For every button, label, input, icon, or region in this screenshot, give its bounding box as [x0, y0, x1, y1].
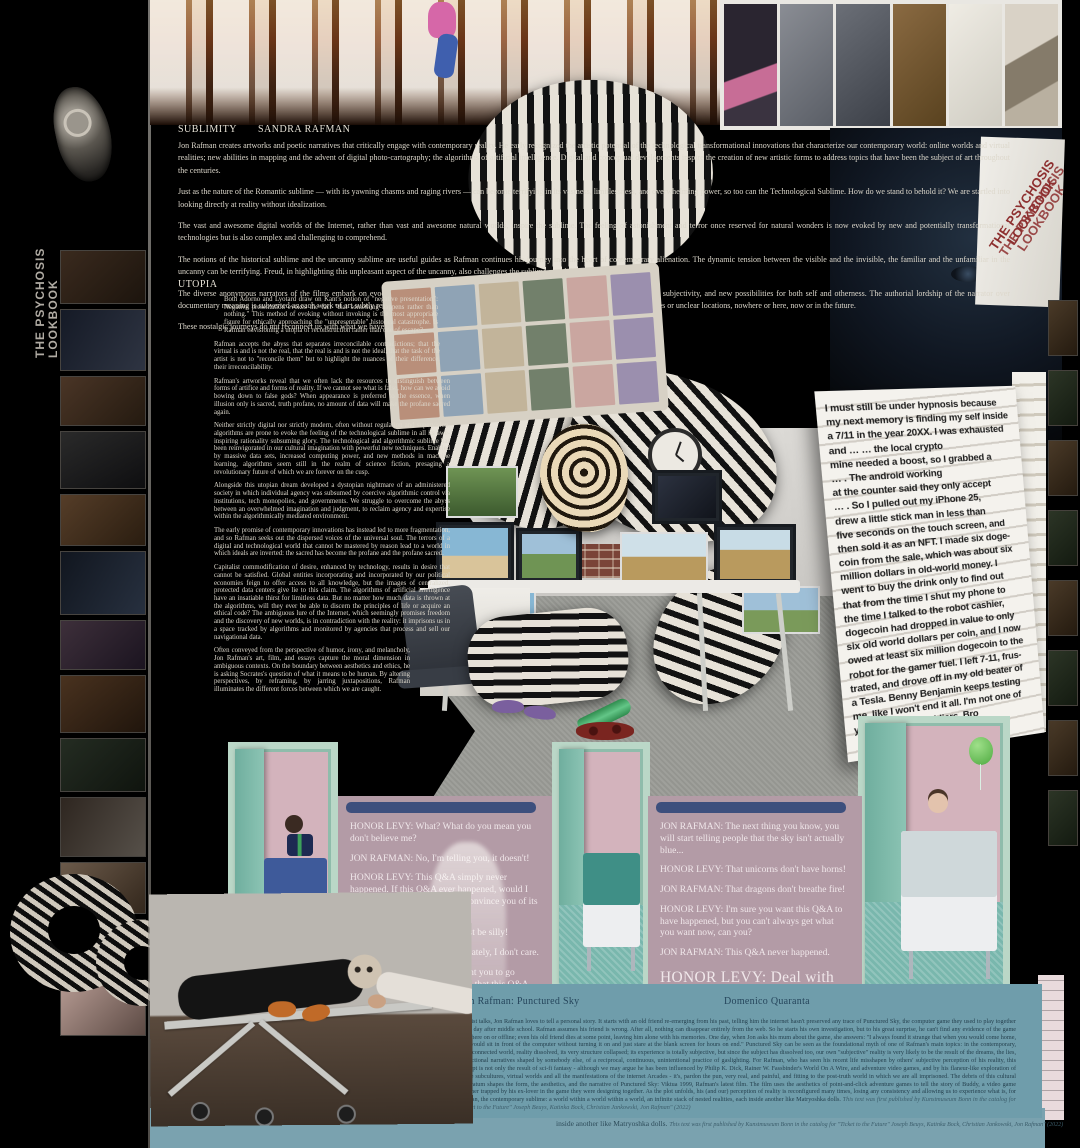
monitor-screen: [442, 528, 508, 578]
patient-head: [285, 815, 303, 833]
stretcher-wheel: [337, 1105, 356, 1124]
album-photo: [485, 370, 528, 413]
bed-leg: [587, 947, 591, 971]
essay-paragraph: The early promise of contemporary innova…: [214, 527, 450, 558]
mascot-logo-icon: [47, 81, 120, 186]
album-photo: [616, 361, 659, 404]
orange-glove: [268, 1001, 296, 1017]
film-frame: [60, 431, 146, 489]
film-frame: [60, 797, 146, 857]
qa-line: HONOR LEVY: That unicorns don't have hor…: [660, 865, 850, 877]
coil-hole: [48, 906, 100, 954]
qa-line: HONOR LEVY: What? What do you mean you d…: [350, 822, 540, 846]
album-photo: [613, 317, 656, 360]
pinned-photo: [446, 466, 518, 518]
hospital-door-3: [858, 716, 1010, 1001]
essay-paragraph: Rafman accepts the abyss that separates …: [214, 341, 440, 372]
footer-caption: inside another like Matryoshka dolls. Th…: [556, 1119, 1063, 1128]
stretcher-wheel: [191, 1102, 210, 1121]
patient-head: [928, 793, 948, 813]
essay-paragraph: Often conveyed from the perspective of h…: [214, 647, 410, 693]
monitor-screen: [658, 476, 716, 518]
film-frame: [60, 250, 146, 304]
film-frame: [893, 4, 946, 126]
film-frame: [60, 738, 146, 792]
album-photo: [526, 323, 569, 366]
catalog-body-text: In artist talks, Jon Rafman loves to tel…: [458, 1018, 1016, 1103]
qa-panel-right: JON RAFMAN: The next thing you know, you…: [648, 796, 862, 1008]
bed-leg: [909, 951, 913, 979]
hanging-figure-torso: [428, 2, 456, 38]
film-frame: [1048, 510, 1078, 566]
stretcher-leg: [258, 1019, 348, 1095]
essay-paragraph: Alongside this utopian dream developed a…: [214, 482, 450, 521]
footer-citation: This text was first published by Kunstmu…: [669, 1122, 1063, 1128]
dogecoin-story-text: I must still be under hypnosis because m…: [824, 396, 1035, 738]
essay-paragraph: Capitalist commodification of desire, en…: [214, 564, 450, 641]
film-frame: [60, 551, 146, 615]
hospital-bed: [583, 853, 640, 947]
film-frame: [1048, 650, 1078, 706]
album-photo: [610, 272, 653, 315]
red-object-on-floor: [576, 722, 634, 740]
film-frame: [1048, 790, 1078, 846]
story-page: I must still be under hypnosis because m…: [814, 386, 1044, 763]
film-frame: [60, 309, 146, 371]
film-frame: [60, 620, 146, 670]
album-photo: [569, 320, 612, 363]
film-strip-right: [1046, 300, 1080, 860]
monitor-screen: [720, 530, 790, 579]
film-frame: [780, 4, 833, 126]
monitor: [652, 470, 722, 524]
album-photo: [573, 364, 616, 407]
qa-line: JON RAFMAN: This Q&A never happened.: [660, 948, 850, 960]
film-frame: [1048, 720, 1078, 776]
film-frame: [1048, 440, 1078, 496]
collage-page: THE PSYCHOSIS LOOKBOOK THE PSYCHOSIS LOO…: [0, 0, 1080, 1148]
pinned-photo: [620, 532, 708, 586]
hospital-door-2: [552, 742, 650, 992]
film-frame: [60, 376, 146, 426]
film-frame: [1005, 4, 1058, 126]
stretcher-wheel: [255, 1107, 274, 1126]
sublimity-heading: SUBLIMITY: [178, 124, 237, 135]
utopia-essay: Both Adorno and Lyotard draw on Kant's n…: [214, 296, 450, 700]
film-frame: [1048, 300, 1078, 356]
green-balloon: [969, 737, 993, 765]
catalog-text-block: Jon Rafman: Punctured Sky Domenico Quara…: [424, 984, 1042, 1118]
essay-paragraph: Jon Rafman creates artworks and poetic n…: [178, 140, 1010, 177]
essay-paragraph: The vast and awesome digital worlds of t…: [178, 220, 1010, 245]
patient-jacket: [287, 834, 313, 856]
essay-paragraph: Both Adorno and Lyotard draw on Kant's n…: [224, 296, 438, 335]
catalog-title: Jon Rafman: Punctured Sky: [460, 996, 579, 1007]
hospital-bed: [901, 831, 998, 950]
film-frame: [1048, 370, 1078, 426]
monitor: [714, 524, 796, 585]
doctor-hand: [368, 994, 386, 1008]
qa-line: HONOR LEVY: I'm sure you want this Q&A t…: [660, 905, 850, 940]
film-frame: [60, 494, 146, 546]
monitor-screen: [522, 534, 576, 578]
bed-leg: [986, 951, 990, 979]
author-name: SANDRA RAFMAN: [258, 124, 350, 135]
catalog-body: In artist talks, Jon Rafman loves to tel…: [458, 1018, 1016, 1112]
album-photo: [482, 326, 525, 369]
bed-footboard-bar: [346, 802, 536, 813]
album-photo: [529, 367, 572, 410]
film-strip-top-right: [720, 0, 1062, 130]
qa-line: JON RAFMAN: The next thing you know, you…: [660, 822, 850, 857]
catalog-author: Domenico Quaranta: [724, 996, 810, 1007]
bed-blanket: [583, 853, 640, 905]
bed-leg: [631, 947, 635, 971]
album-photo: [566, 275, 609, 318]
footer-caption-text: inside another like Matryoshka dolls.: [556, 1119, 669, 1128]
film-frame: [1048, 580, 1078, 636]
film-frame: [724, 4, 777, 126]
qa-line: JON RAFMAN: That dragons don't breathe f…: [660, 885, 850, 897]
album-photo: [479, 281, 522, 324]
spiral-head: [540, 424, 628, 532]
essay-paragraph: Just as the nature of the Romantic subli…: [178, 186, 1010, 211]
essay-paragraph: Rafman's artworks reveal that we often l…: [214, 378, 450, 417]
stretcher-leg: [168, 1021, 256, 1097]
essay-paragraph: Neither strictly digital nor strictly mo…: [214, 422, 450, 476]
film-frame: [836, 4, 889, 126]
slipper: [492, 700, 524, 713]
utopia-heading: UTOPIA: [178, 279, 217, 290]
album-photo: [522, 278, 565, 321]
monitor: [516, 528, 582, 584]
film-frame: [60, 675, 146, 733]
bed-footboard-bar: [656, 802, 846, 813]
bed-blanket: [901, 831, 998, 897]
film-frame: [949, 4, 1002, 126]
gurney-photo: [149, 892, 473, 1127]
